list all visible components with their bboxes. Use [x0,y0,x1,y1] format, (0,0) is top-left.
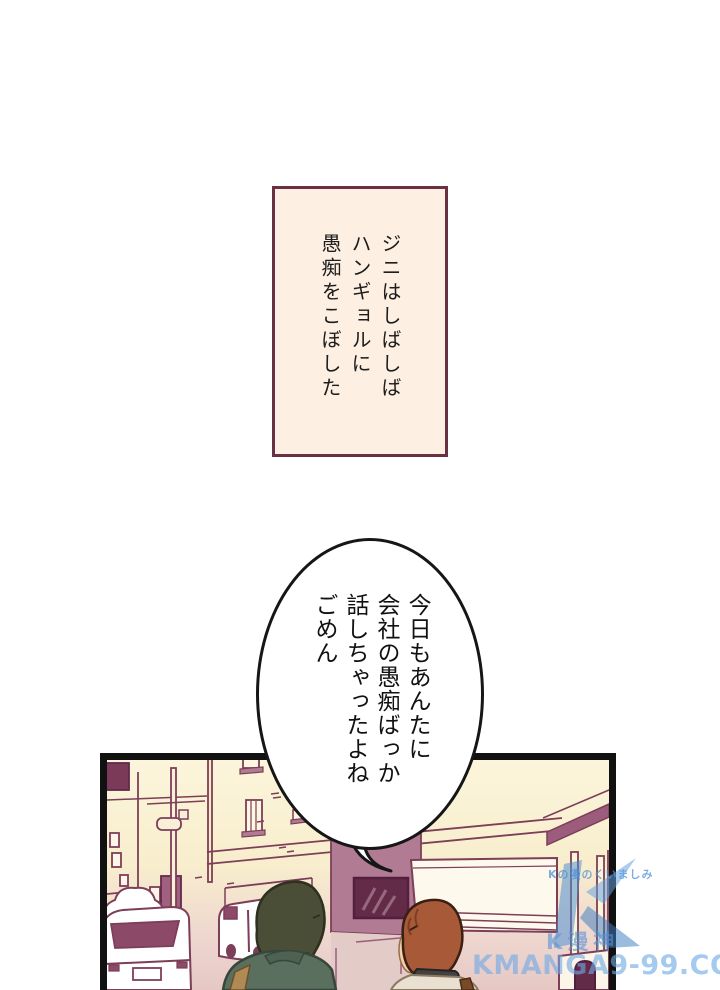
speech-line: 話しちゃったよね [339,593,370,785]
manga-page: ジニはしばしば ハンギョルに 愚痴をこぼした [0,0,720,990]
parked-car [107,907,191,990]
character-2-hair [403,900,463,978]
dark-archway [575,961,595,990]
speech-line: ごめん [308,593,339,785]
speech-bubble-text: 今日もあんたに 会社の愚痴ばっか 話しちゃったよね ごめん [308,593,432,785]
narration-line: 愚痴をこぼした [315,233,345,401]
speech-line: 会社の愚痴ばっか [370,593,401,785]
speech-bubble: 今日もあんたに 会社の愚痴ばっか 話しちゃったよね ごめん [256,538,484,850]
narration-line: ハンギョルに [345,233,375,401]
narration-line: ジニはしばしば [375,233,405,401]
narration-text: ジニはしばしば ハンギョルに 愚痴をこぼした [315,233,405,401]
speech-line: 今日もあんたに [401,593,432,785]
narration-box: ジニはしばしば ハンギョルに 愚痴をこぼした [272,186,448,457]
